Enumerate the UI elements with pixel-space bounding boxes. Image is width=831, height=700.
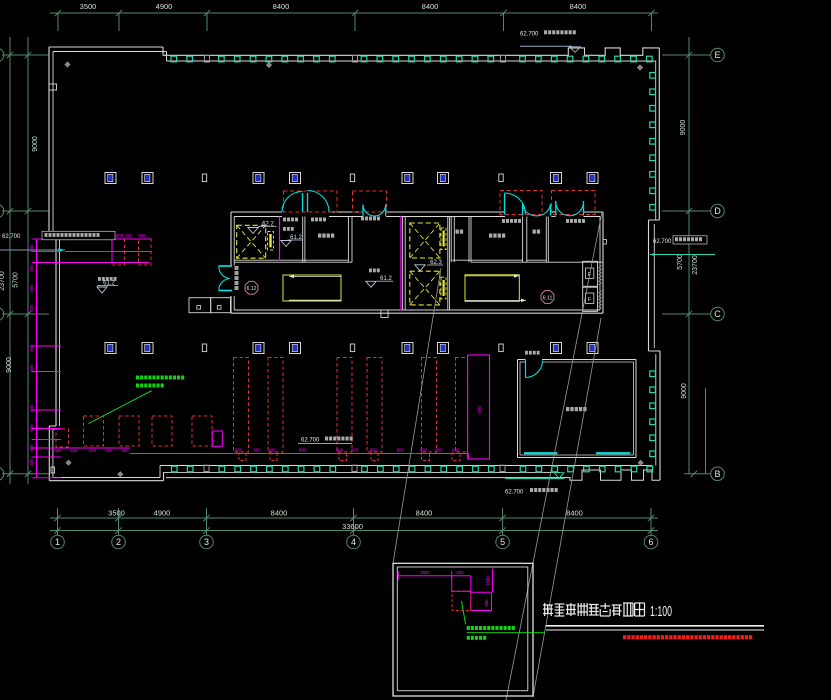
svg-text:600: 600 xyxy=(29,364,34,372)
svg-text:600: 600 xyxy=(420,448,428,453)
svg-text:9000: 9000 xyxy=(680,120,687,136)
svg-text:8400: 8400 xyxy=(422,2,439,11)
svg-text:2: 2 xyxy=(116,537,121,547)
svg-text:600: 600 xyxy=(116,233,124,238)
svg-text:600: 600 xyxy=(235,448,243,453)
svg-text:600: 600 xyxy=(29,264,34,272)
svg-text:D: D xyxy=(714,206,721,216)
svg-text:5700: 5700 xyxy=(13,272,20,288)
svg-text:600: 600 xyxy=(370,448,378,453)
svg-text:23700: 23700 xyxy=(692,255,699,275)
svg-text:600: 600 xyxy=(299,448,307,453)
svg-text:600: 600 xyxy=(452,448,460,453)
svg-text:8400: 8400 xyxy=(570,2,587,11)
svg-text:600: 600 xyxy=(351,448,359,453)
svg-text:B: B xyxy=(714,469,720,479)
svg-text:62.700: 62.700 xyxy=(301,438,320,444)
svg-text:600: 600 xyxy=(397,448,405,453)
svg-text:8400: 8400 xyxy=(416,509,433,518)
svg-text:550: 550 xyxy=(89,448,97,453)
svg-text:1: 1 xyxy=(55,537,60,547)
svg-text:900: 900 xyxy=(484,599,489,607)
svg-text:600: 600 xyxy=(29,344,34,352)
svg-text:600: 600 xyxy=(269,448,277,453)
svg-text:3500: 3500 xyxy=(80,2,97,11)
svg-text:6.12: 6.12 xyxy=(246,286,256,292)
svg-text:9000: 9000 xyxy=(32,136,39,152)
svg-text:2800: 2800 xyxy=(420,570,430,575)
svg-text:(2): (2) xyxy=(126,233,132,238)
svg-text:600: 600 xyxy=(336,448,344,453)
svg-text:600: 600 xyxy=(29,304,34,312)
svg-text:900: 900 xyxy=(456,570,464,575)
svg-text:23700: 23700 xyxy=(0,271,6,291)
svg-text:9000: 9000 xyxy=(681,383,688,399)
svg-text:1:100: 1:100 xyxy=(650,604,672,620)
svg-text:550: 550 xyxy=(54,448,62,453)
svg-text:4: 4 xyxy=(351,537,356,547)
svg-text:6: 6 xyxy=(648,537,653,547)
svg-text:62.700: 62.700 xyxy=(2,234,21,240)
svg-text:600: 600 xyxy=(138,233,146,238)
svg-text:600: 600 xyxy=(29,424,34,432)
svg-text:4900: 4900 xyxy=(154,509,171,518)
svg-text:550: 550 xyxy=(70,448,78,453)
svg-text:600: 600 xyxy=(29,404,34,412)
svg-text:6.11: 6.11 xyxy=(543,295,553,301)
svg-text:62.700: 62.700 xyxy=(505,490,524,496)
svg-text:8400: 8400 xyxy=(271,509,288,518)
svg-text:33600: 33600 xyxy=(342,522,363,531)
svg-text:62.700: 62.700 xyxy=(653,239,672,245)
svg-text:5700: 5700 xyxy=(677,254,684,270)
svg-text:600: 600 xyxy=(29,458,34,466)
svg-text:600: 600 xyxy=(436,448,444,453)
svg-text:500: 500 xyxy=(477,406,482,414)
svg-text:1500: 1500 xyxy=(486,576,491,586)
svg-text:3: 3 xyxy=(204,537,209,547)
svg-text:600: 600 xyxy=(29,444,34,452)
svg-text:8400: 8400 xyxy=(566,509,583,518)
svg-text:4900: 4900 xyxy=(156,2,173,11)
svg-text:9000: 9000 xyxy=(6,357,13,373)
svg-text:600: 600 xyxy=(29,284,34,292)
svg-text:600: 600 xyxy=(254,448,262,453)
svg-text:8400: 8400 xyxy=(273,2,290,11)
svg-text:3500: 3500 xyxy=(108,509,125,518)
svg-text:550: 550 xyxy=(105,448,113,453)
svg-text:550: 550 xyxy=(122,448,130,453)
svg-text:E: E xyxy=(714,50,720,60)
svg-text:5: 5 xyxy=(500,537,505,547)
svg-text:C: C xyxy=(714,309,721,319)
svg-text:62.700: 62.700 xyxy=(520,32,539,38)
